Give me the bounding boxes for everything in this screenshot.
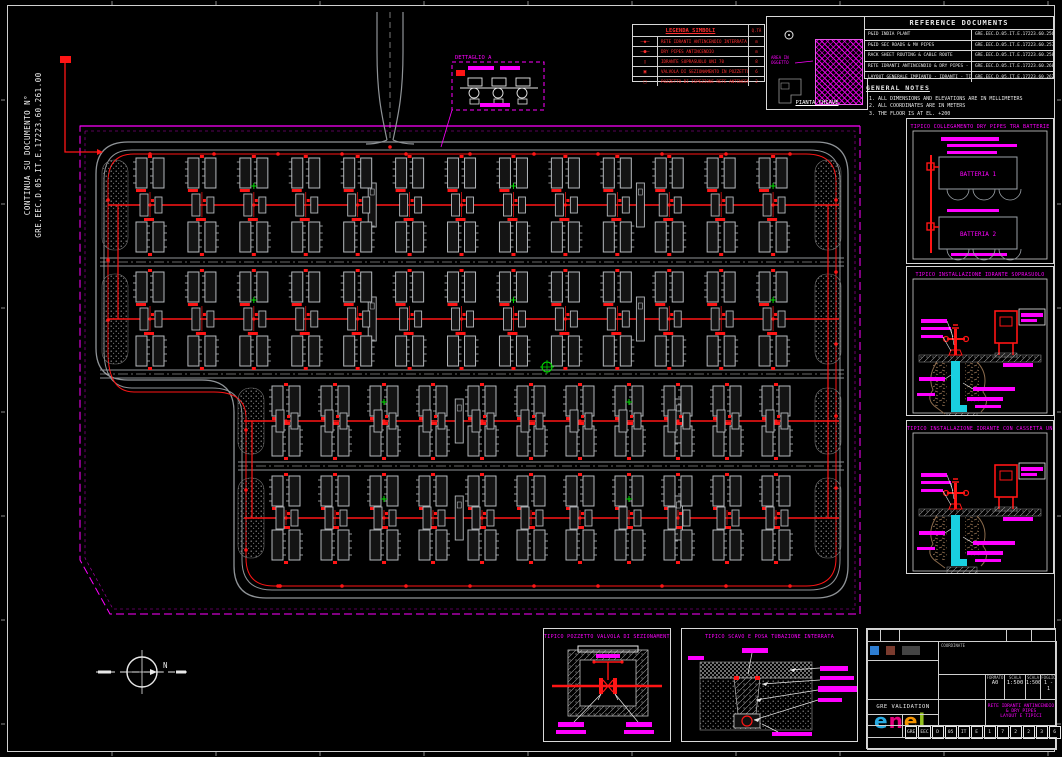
- valve-pit-drawing: [544, 640, 670, 741]
- legend-qty: 8: [748, 57, 764, 66]
- entry-road: [366, 12, 414, 149]
- legend-qty-header: Q.TÀ: [748, 25, 764, 36]
- continuation-line1: CONTINUA SU DOCUMENTO N°: [22, 52, 33, 258]
- left-continuation-note: CONTINUA SU DOCUMENTO N° GRE.EEC.D.05.IT…: [22, 52, 45, 258]
- refdoc-row: P&ID SEC ROADS & MV PIPESGRE.EEC.D.05.IT…: [865, 41, 1053, 52]
- legend-qty: m: [748, 47, 764, 56]
- legend-label: RETE IDRANTI ANTINCENDIO INTERRATA: [658, 39, 748, 44]
- panel3-drawing: [907, 431, 1053, 573]
- refdoc-number: GRE.EEC.D.05.IT.E.17223.60.260.00: [971, 62, 1053, 72]
- detail-panel-hydrant-1: TIPICO INSTALLAZIONE IDRANTE SOPRASUOLO: [906, 266, 1054, 416]
- legend-row: —◆—RETE IDRANTI ANTINCENDIO INTERRATAm: [633, 37, 764, 47]
- legend-row: □POZZETTO DI ISPEZIONE RETE ANTINCENDIO2: [633, 77, 764, 86]
- cad-sheet: DETTAGLIO A N CONTINUA SU DOCUMENTO N° G…: [0, 0, 1062, 757]
- refdoc-title: RETE IDRANTI ANTINCENDIO & DRY PIPES - K…: [865, 62, 971, 72]
- legend-row: ▣VALVOLA DI SEZIONAMENTO IN POZZETTO6: [633, 67, 764, 77]
- detail-panel-hydrant-2: TIPICO INSTALLAZIONE IDRANTE CON CASSETT…: [906, 420, 1054, 574]
- validation-cell: GRE VALIDATION: [867, 699, 939, 715]
- feeder-line: [60, 56, 103, 155]
- reference-documents-title: REFERENCE DOCUMENTS: [865, 17, 1053, 30]
- note-item: ALL COORDINATES ARE IN METERS: [878, 103, 1054, 111]
- refdoc-title: LAYOUT GENERALE IMPIANTO - IDRANTI - TIP…: [865, 72, 971, 82]
- key-plan-area-label: AREA IN OGGETTO: [771, 55, 789, 66]
- refdoc-row: P&ID INDIA PLANTGRE.EEC.D.05.IT.E.17223.…: [865, 30, 1053, 41]
- detail-valve-pit: TIPICO POZZETTO VALVOLA DI SEZIONAMENTO: [543, 628, 671, 742]
- general-notes-title: GENERAL NOTES: [866, 84, 1054, 94]
- reference-documents-table: REFERENCE DOCUMENTS P&ID INDIA PLANTGRE.…: [864, 16, 1054, 79]
- legend-label: DRY PIPES ANTINCENDIO: [658, 49, 748, 54]
- legend-qty: 2: [748, 77, 764, 86]
- battery2-label: BATTERIA 2: [960, 231, 997, 238]
- battery1-label: BATTERIA 1: [960, 171, 997, 178]
- key-plan-box: AREA IN OGGETTO PIANTA CHIAVE: [766, 16, 868, 110]
- refdoc-title: P&ID INDIA PLANT: [865, 30, 971, 40]
- pump-detail-label: DETTAGLIO A: [455, 55, 492, 61]
- refdoc-row: RETE IDRANTI ANTINCENDIO & DRY PIPES - K…: [865, 62, 1053, 73]
- refdoc-number: GRE.EEC.D.05.IT.E.17223.60.262.00: [971, 72, 1053, 82]
- scale2-cell: SCALA 1:500: [1025, 674, 1041, 700]
- legend-symbol: □: [633, 77, 658, 86]
- continuation-line2: GRE.EEC.D.05.IT.E.17223.60.261.00: [33, 52, 44, 258]
- north-arrow: N: [96, 650, 188, 694]
- refdoc-number: GRE.EEC.D.05.IT.E.17223.60.257.00: [971, 41, 1053, 51]
- panel2-drawing: [907, 277, 1053, 415]
- refdoc-number: GRE.EEC.D.05.IT.E.17223.60.258.00: [971, 51, 1053, 61]
- refdoc-row: LAYOUT GENERALE IMPIANTO - IDRANTI - TIP…: [865, 72, 1053, 82]
- legend-qty: 6: [748, 67, 764, 76]
- detail-panel-dry-pipes: TIPICO COLLEGAMENTO DRY PIPES TRA BATTER…: [906, 118, 1054, 264]
- legend-label: IDRANTE SOPRASUOLO UNI 70: [658, 59, 748, 64]
- refdoc-number: GRE.EEC.D.05.IT.E.17223.60.256.00: [971, 30, 1053, 40]
- legend-symbol: —◆—: [633, 37, 658, 46]
- trench-drawing: [682, 640, 857, 741]
- legend-row: ▯IDRANTE SOPRASUOLO UNI 708: [633, 57, 764, 67]
- pump-detail-box: DETTAGLIO A: [441, 55, 544, 147]
- refdoc-title: P&ID SEC ROADS & MV PIPES: [865, 41, 971, 51]
- refdoc-title: RACK SHEET ROUTING & CABLE ROUTE: [865, 51, 971, 61]
- legend-symbol: ▣: [633, 67, 658, 76]
- legend-label: POZZETTO DI ISPEZIONE RETE ANTINCENDIO: [658, 79, 748, 84]
- legend-header: LEGENDA SIMBOLI Q.TÀ: [633, 25, 764, 37]
- refdoc-row: RACK SHEET ROUTING & CABLE ROUTEGRE.EEC.…: [865, 51, 1053, 62]
- legend-qty: m: [748, 37, 764, 46]
- format-cell: FORMATO A0: [985, 674, 1005, 700]
- general-notes: GENERAL NOTES ALL DIMENSIONS AND ELEVATI…: [866, 84, 1054, 118]
- legend-row: —●—DRY PIPES ANTINCENDIOm: [633, 47, 764, 57]
- legend-symbol: ▯: [633, 57, 658, 66]
- legend-label: VALVOLA DI SEZIONAMENTO IN POZZETTO: [658, 69, 748, 74]
- note-item: ALL DIMENSIONS AND ELEVATIONS ARE IN MIL…: [878, 96, 1054, 104]
- legend-symbol: —●—: [633, 47, 658, 56]
- cert-logos-cell: [867, 641, 939, 661]
- scale1-cell: SCALA 1:500: [1004, 674, 1026, 700]
- panel1-drawing: BATTERIA 1BATTERIA 2: [907, 129, 1053, 263]
- north-label: N: [163, 661, 168, 670]
- site-plan: [80, 126, 860, 614]
- sheet-cell: FOGLIO 1 - 1: [1040, 674, 1057, 700]
- enel-logo-cell: enel: [867, 660, 939, 700]
- drawing-title-line2: LAYOUT E TIPICI: [986, 714, 1056, 719]
- coordination-cell: COORDINATE: [938, 641, 1057, 675]
- title-block: enel GRE VALIDATION COORDINATE FORMATO A…: [866, 628, 1056, 749]
- legend-box: LEGENDA SIMBOLI Q.TÀ —◆—RETE IDRANTI ANT…: [632, 24, 765, 82]
- key-plan-caption: PIANTA CHIAVE: [767, 100, 867, 106]
- drawing-title-cell: RETE IDRANTI ANTINCENDIO & DRY PIPES LAY…: [985, 699, 1057, 726]
- legend-title: LEGENDA SIMBOLI: [633, 28, 748, 34]
- drawing-title-line1: RETE IDRANTI ANTINCENDIO & DRY PIPES: [986, 704, 1056, 714]
- detail-trench-section: TIPICO SCAVO E POSA TUBAZIONE INTERRATA: [681, 628, 858, 742]
